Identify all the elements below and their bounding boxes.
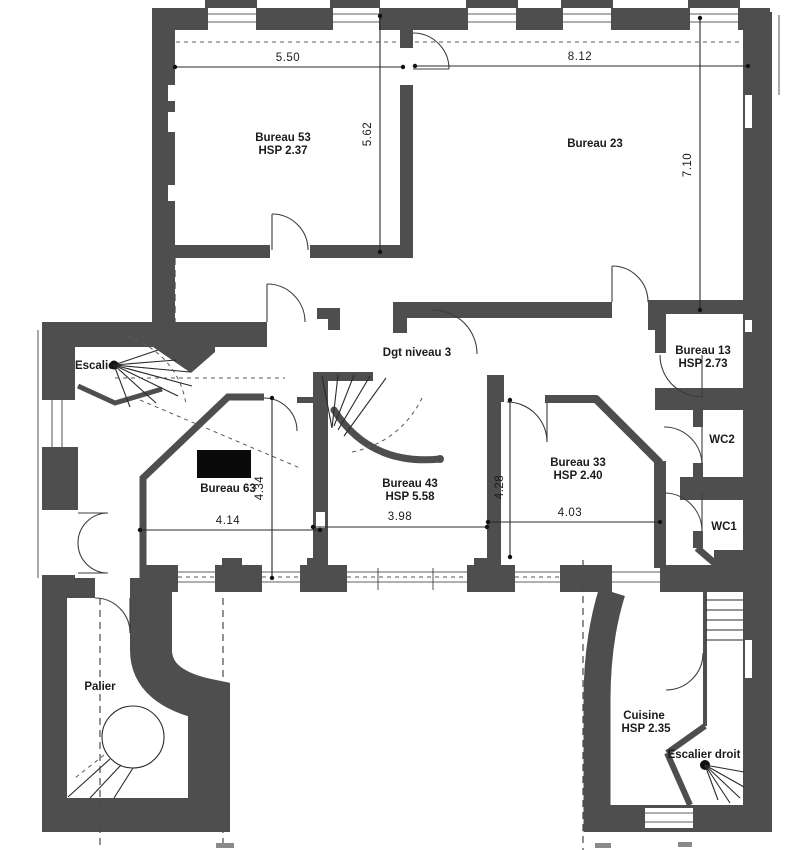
- room-label-bureau23: Bureau 23: [567, 138, 623, 150]
- walls: [42, 0, 772, 832]
- window-top-4: [563, 8, 611, 30]
- room-hsp-bureau13: HSP 2.73: [678, 358, 727, 370]
- corridor-label: Dgt niveau 3: [383, 347, 451, 359]
- dim-bureau63-width: 4.14: [216, 515, 240, 527]
- dim-bureau33-width: 4.03: [558, 507, 582, 519]
- double-door-left: [78, 513, 108, 573]
- room-label-wc1: WC1: [711, 521, 737, 533]
- room-label-bureau13: Bureau 13: [675, 345, 731, 357]
- room-hsp-bureau43: HSP 5.58: [385, 491, 435, 503]
- room-label-escalier: Escalier: [75, 360, 120, 372]
- black-block-bureau63: [197, 450, 251, 478]
- room-hsp-bureau33: HSP 2.40: [553, 470, 602, 482]
- room-label-palier: Palier: [84, 681, 116, 693]
- room-label-bureau63: Bureau 63: [200, 483, 256, 495]
- dim-bureau43-width: 3.98: [388, 511, 412, 523]
- room-label-bureau53: Bureau 53: [255, 132, 311, 144]
- floor-plan-page: Bureau 53 HSP 2.37 Bureau 23 Bureau 13 H…: [0, 0, 806, 850]
- window-bottom-3: [347, 568, 467, 590]
- room-hsp-cuisine: HSP 2.35: [621, 723, 671, 735]
- window-bottom-5: [612, 568, 660, 590]
- window-top-2: [333, 8, 379, 30]
- window-bottom-2: [262, 568, 300, 590]
- dim-bureau43-height: 4.28: [494, 475, 506, 499]
- window-top-3: [468, 8, 516, 30]
- window-top-1: [208, 8, 256, 30]
- window-top-5: [690, 8, 738, 30]
- room-label-cuisine: Cuisine: [623, 710, 665, 722]
- window-bottom-4: [515, 568, 560, 590]
- dim-bureau23-width: 8.12: [568, 51, 592, 63]
- room-label-bureau43: Bureau 43: [382, 478, 438, 490]
- room-hsp-bureau53: HSP 2.37: [258, 145, 307, 157]
- dim-bureau53-width: 5.50: [276, 52, 300, 64]
- dim-bureau23-height: 7.10: [682, 153, 694, 177]
- floor-plan-drawing: Bureau 53 HSP 2.37 Bureau 23 Bureau 13 H…: [0, 0, 806, 850]
- window-left: [44, 400, 76, 447]
- window-bottom-1: [178, 568, 215, 590]
- window-cuisine: [645, 808, 693, 828]
- room-label-bureau33: Bureau 33: [550, 457, 606, 469]
- dim-bureau53-height: 5.62: [362, 122, 374, 146]
- room-label-wc2: WC2: [709, 434, 735, 446]
- windows: [44, 8, 752, 828]
- room-label-escalier-droit: Escalier droit: [668, 749, 741, 761]
- dim-bureau63-height: 4.34: [254, 476, 266, 500]
- circular-stair-palier: [68, 706, 164, 798]
